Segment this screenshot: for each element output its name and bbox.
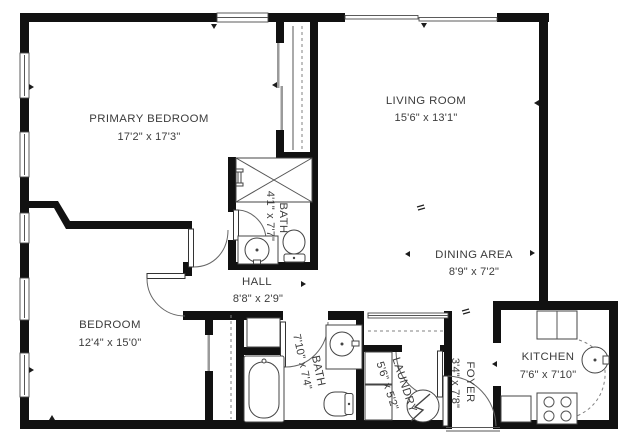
svg-text:17'2" x 17'3": 17'2" x 17'3": [118, 131, 181, 143]
svg-text:4'1" x 7'7": 4'1" x 7'7": [264, 191, 276, 241]
window-top-living-2: [419, 18, 497, 22]
room-foyer: FOYER 3'4" x 7'8": [449, 358, 476, 408]
primary-slider-panel-1: [277, 43, 280, 88]
svg-text:12'4" x 15'0": 12'4" x 15'0": [79, 337, 142, 349]
svg-text:KITCHEN: KITCHEN: [522, 351, 575, 363]
room-kitchen: KITCHEN 7'6" x 7'10": [520, 351, 577, 381]
window-top-primary: [217, 13, 268, 22]
svg-text:8'9" x 7'2": 8'9" x 7'2": [449, 266, 499, 278]
fridge: [537, 311, 577, 339]
room-bath-lower: BATH 7'10" x 7'4": [290, 333, 327, 391]
toilet: [283, 230, 305, 262]
vanity-sink: [326, 325, 362, 369]
bathtub: [244, 356, 284, 422]
svg-text:8'8" x 2'9": 8'8" x 2'9": [233, 293, 283, 305]
shower-closet: [247, 318, 280, 347]
svg-text:FOYER: FOYER: [464, 361, 476, 402]
stove: [537, 393, 577, 424]
room-dining-area: DINING AREA 8'9" x 7'2": [435, 249, 513, 278]
pantry-front: [368, 313, 448, 318]
room-bedroom: BEDROOM 12'4" x 15'0": [79, 319, 142, 349]
dishwasher-counter: [501, 396, 531, 422]
svg-text:3'4" x 7'8": 3'4" x 7'8": [449, 358, 461, 408]
svg-text:15'6" x 13'1": 15'6" x 13'1": [395, 112, 458, 124]
svg-text:BATH: BATH: [277, 202, 289, 233]
svg-text:BEDROOM: BEDROOM: [79, 319, 141, 331]
room-hall: HALL 8'8" x 2'9": [233, 276, 283, 305]
svg-text:DINING AREA: DINING AREA: [435, 249, 513, 261]
svg-text:LIVING ROOM: LIVING ROOM: [386, 95, 466, 107]
window-left-4: [20, 278, 29, 320]
window-left-2: [20, 132, 29, 177]
floor-plan-svg: PRIMARY BEDROOM 17'2" x 17'3" LIVING ROO…: [0, 0, 640, 446]
svg-text:HALL: HALL: [242, 276, 272, 288]
window-left-3: [20, 213, 29, 243]
svg-text:7'6" x 7'10": 7'6" x 7'10": [520, 369, 577, 381]
kitchen-fixtures: [501, 311, 609, 424]
room-primary-bedroom: PRIMARY BEDROOM 17'2" x 17'3": [89, 113, 209, 143]
window-left-1: [20, 53, 29, 98]
kitchen-sink: [582, 347, 609, 373]
floor-plan-image: PRIMARY BEDROOM 17'2" x 17'3" LIVING ROO…: [0, 0, 640, 446]
window-left-5: [20, 353, 29, 397]
toilet: [324, 392, 353, 416]
bedroom-closet-slider: [208, 335, 211, 371]
bedroom-door: [147, 274, 185, 317]
room-living-room: LIVING ROOM 15'6" x 13'1": [386, 95, 466, 124]
svg-text:PRIMARY BEDROOM: PRIMARY BEDROOM: [89, 113, 209, 125]
primary-bedroom-door: [189, 229, 229, 267]
primary-slider-panel-2: [281, 86, 284, 130]
window-top-living-1: [345, 16, 418, 20]
